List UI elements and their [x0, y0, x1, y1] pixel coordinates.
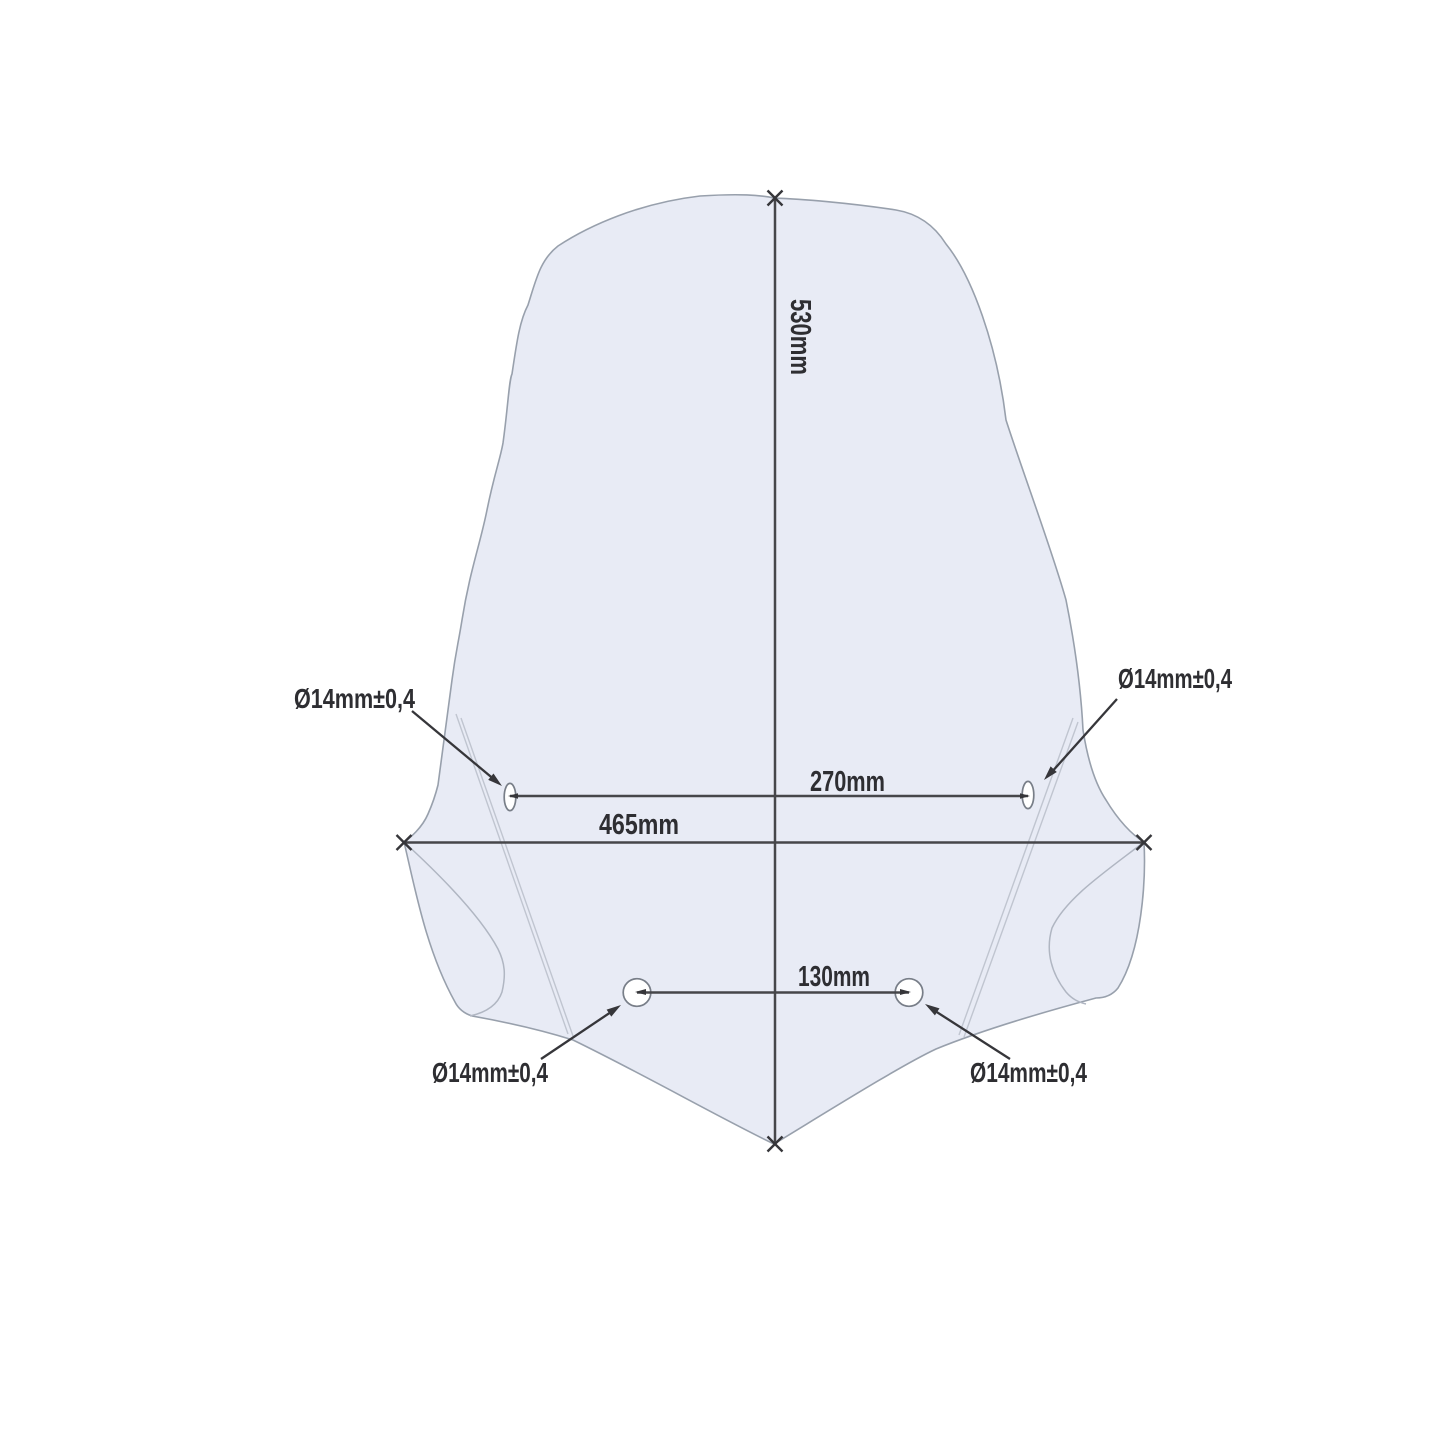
svg-text:Ø14mm±0,4: Ø14mm±0,4	[970, 1057, 1087, 1088]
svg-text:Ø14mm±0,4: Ø14mm±0,4	[294, 683, 415, 714]
svg-text:530mm: 530mm	[784, 299, 816, 375]
svg-text:Ø14mm±0,4: Ø14mm±0,4	[432, 1057, 548, 1088]
svg-text:Ø14mm±0,4: Ø14mm±0,4	[1118, 663, 1232, 694]
svg-text:270mm: 270mm	[810, 766, 885, 798]
svg-text:130mm: 130mm	[798, 961, 870, 993]
svg-text:465mm: 465mm	[599, 809, 679, 841]
